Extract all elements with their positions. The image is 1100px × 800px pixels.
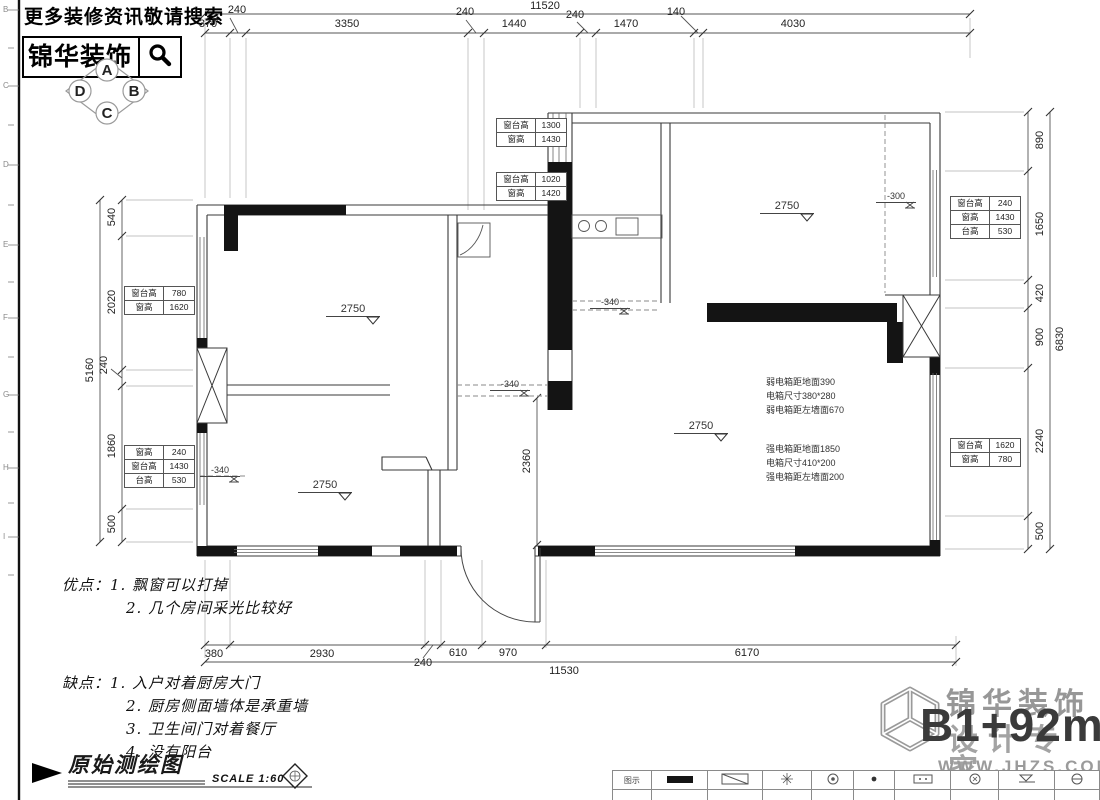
- compass-letter-d: D: [72, 84, 88, 99]
- cons-note: 缺点：1. 入户对着厨房大门 2. 厨房侧面墙体是承重墙 3. 卫生间门对着餐厅…: [62, 672, 308, 764]
- cons-title: 缺点：: [62, 674, 110, 692]
- level-mark-icon: [800, 213, 814, 222]
- level-mark-icon: [229, 475, 240, 483]
- dim-right-seg: 2240: [1034, 419, 1046, 463]
- level-mark-icon: [905, 201, 916, 209]
- dim-right-seg: 1650: [1034, 202, 1046, 246]
- dim-top-seg: 3350: [325, 18, 369, 30]
- dim-top-seg: 240: [450, 6, 480, 18]
- mini-compass-icon: [282, 763, 308, 789]
- dim-top-seg: 1470: [604, 18, 648, 30]
- dashed-openings: [200, 115, 885, 476]
- dim-left-total: 5160: [84, 348, 96, 392]
- ruler-letter: G: [3, 391, 9, 399]
- dim-right-seg: 420: [1034, 271, 1046, 315]
- compass-letter-a: A: [99, 63, 115, 78]
- dim-top-seg: 240: [222, 4, 252, 16]
- dim-bottom-seg: 240: [408, 657, 438, 669]
- dim-left-seg: 500: [106, 502, 118, 546]
- bay-window-left: [197, 348, 227, 423]
- level-marker: 2750: [674, 420, 728, 434]
- pros-note: 优点：1. 飘窗可以打掉 2. 几个房间采光比较好: [62, 574, 292, 620]
- level-mark-icon: [366, 316, 380, 325]
- legend-window-icon: [708, 771, 763, 790]
- drawing-title: 原始测绘图: [68, 754, 183, 775]
- level-marker: 2750: [326, 303, 380, 317]
- ruler-letter: I: [3, 533, 5, 541]
- dim-left-extra: 240: [98, 343, 110, 387]
- level-mark-icon: [619, 307, 630, 315]
- compass-letter-b: B: [126, 84, 142, 99]
- closet-sketch: [458, 223, 490, 257]
- dim-top-seg: 1440: [492, 18, 536, 30]
- dim-top-seg: 4030: [770, 18, 816, 30]
- ruler-ticks: [8, 10, 19, 575]
- dim-left-seg: 1860: [106, 424, 118, 468]
- dim-right-seg: 890: [1034, 118, 1046, 162]
- pros-title: 优点：: [62, 576, 110, 594]
- window-table: 窗台高1020 窗高1420: [496, 172, 567, 201]
- level-marker: 2750: [760, 200, 814, 214]
- level-marker-negative: -300: [876, 191, 916, 203]
- compass-letter-c: C: [99, 106, 115, 121]
- legend-lamp-icon: [763, 771, 811, 790]
- dim-bottom-seg: 970: [490, 647, 526, 659]
- level-marker-negative: -340: [590, 297, 630, 309]
- legend-dot-icon: [854, 771, 895, 790]
- legend-header: 图示: [613, 771, 652, 790]
- title-arrow-icon: [32, 763, 62, 783]
- level-mark-icon: [714, 433, 728, 442]
- dim-bottom-total: 11530: [535, 665, 593, 677]
- dim-bottom-seg: 6170: [725, 647, 769, 659]
- legend-switch-icon: [951, 771, 999, 790]
- dim-left-seg: 540: [106, 195, 118, 239]
- kitchen-counter: [572, 215, 662, 238]
- strong-current-box-note: 强电箱距地面1850 电箱尺寸410*200 强电箱距左墙面200: [766, 442, 844, 484]
- level-mark-icon: [519, 389, 530, 397]
- level-marker-negative: -340: [200, 465, 240, 477]
- legend-row-clipped: [613, 790, 1100, 800]
- ruler-letter: F: [3, 314, 8, 322]
- dim-bottom-seg: 610: [442, 647, 474, 659]
- legend-solid-wall-icon: [651, 771, 708, 790]
- dim-right-total: 6830: [1054, 317, 1066, 361]
- level-marker: 2750: [298, 479, 352, 493]
- dim-bottom-seg: 2930: [300, 648, 344, 660]
- entry-door: [461, 548, 540, 622]
- watermark-area-label: B1+92m2: [920, 702, 1100, 748]
- dim-bottom-seg: 380: [196, 648, 232, 660]
- level-mark-icon: [338, 492, 352, 501]
- drawing-scale: SCALE 1:60: [212, 774, 284, 785]
- window-table: 窗高240 窗台高1430 台高530: [124, 445, 195, 488]
- ruler-letter: E: [3, 241, 8, 249]
- bay-window-right: [903, 295, 940, 357]
- window-table: 窗台高780 窗高1620: [124, 286, 195, 315]
- level-marker-negative: -340: [490, 379, 530, 391]
- legend-table: 图示: [612, 770, 1100, 800]
- legend-ceiling-light-icon: [811, 771, 854, 790]
- ruler-letter: B: [3, 6, 8, 14]
- legend-level-icon: [999, 771, 1055, 790]
- dim-left-seg: 2020: [106, 280, 118, 324]
- dim-top-seg: 240: [560, 9, 590, 21]
- weak-current-box-note: 弱电箱距地面390 电箱尺寸380*280 弱电箱距左墙面670: [766, 375, 844, 417]
- floorplan-sheet: 更多装修资讯敬请搜索 锦华装饰 A B C D B C D E F G H I …: [0, 0, 1100, 800]
- window-table: 窗台高1300 窗高1430: [496, 118, 567, 147]
- legend-socket-icon: [894, 771, 950, 790]
- ruler-letter: C: [3, 82, 9, 90]
- dim-right-seg: 900: [1034, 315, 1046, 359]
- window-table: 窗台高240 窗高1430 台高530: [950, 196, 1021, 239]
- dim-top-seg: 140: [660, 6, 692, 18]
- ruler-letter: D: [3, 161, 9, 169]
- ruler-letter: H: [3, 464, 9, 472]
- legend-circle-dash-icon: [1055, 771, 1100, 790]
- dim-entry-depth: 2360: [521, 439, 533, 483]
- dim-top-seg: 370: [190, 18, 226, 30]
- dim-right-seg: 500: [1034, 509, 1046, 553]
- walls-solid: [197, 162, 940, 556]
- window-table: 窗台高1620 窗高780: [950, 438, 1021, 467]
